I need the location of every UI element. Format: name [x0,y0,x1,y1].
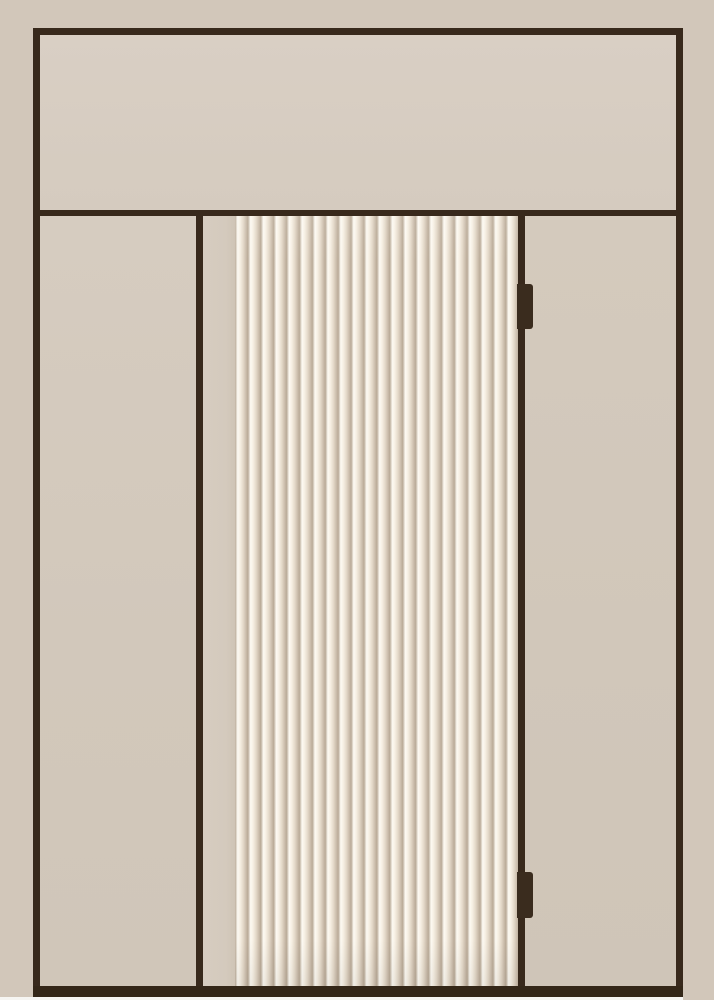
left-side-panel [40,216,196,986]
door-leaf-left-edge [196,216,203,986]
door-leaf-stile [203,216,235,986]
fluted-door-leaf [235,216,518,986]
frame-right-line [676,28,683,997]
transom-divider-line [33,210,683,216]
threshold-bar [33,986,683,997]
frame-top-line [33,28,683,35]
transom-panel [40,35,676,210]
right-side-panel [525,216,676,986]
hinge-top [517,284,533,329]
frame-left-line [33,28,40,997]
door-leaf-right-edge [518,216,525,986]
hinge-bottom [517,872,533,918]
door-elevation-canvas [0,0,714,1000]
